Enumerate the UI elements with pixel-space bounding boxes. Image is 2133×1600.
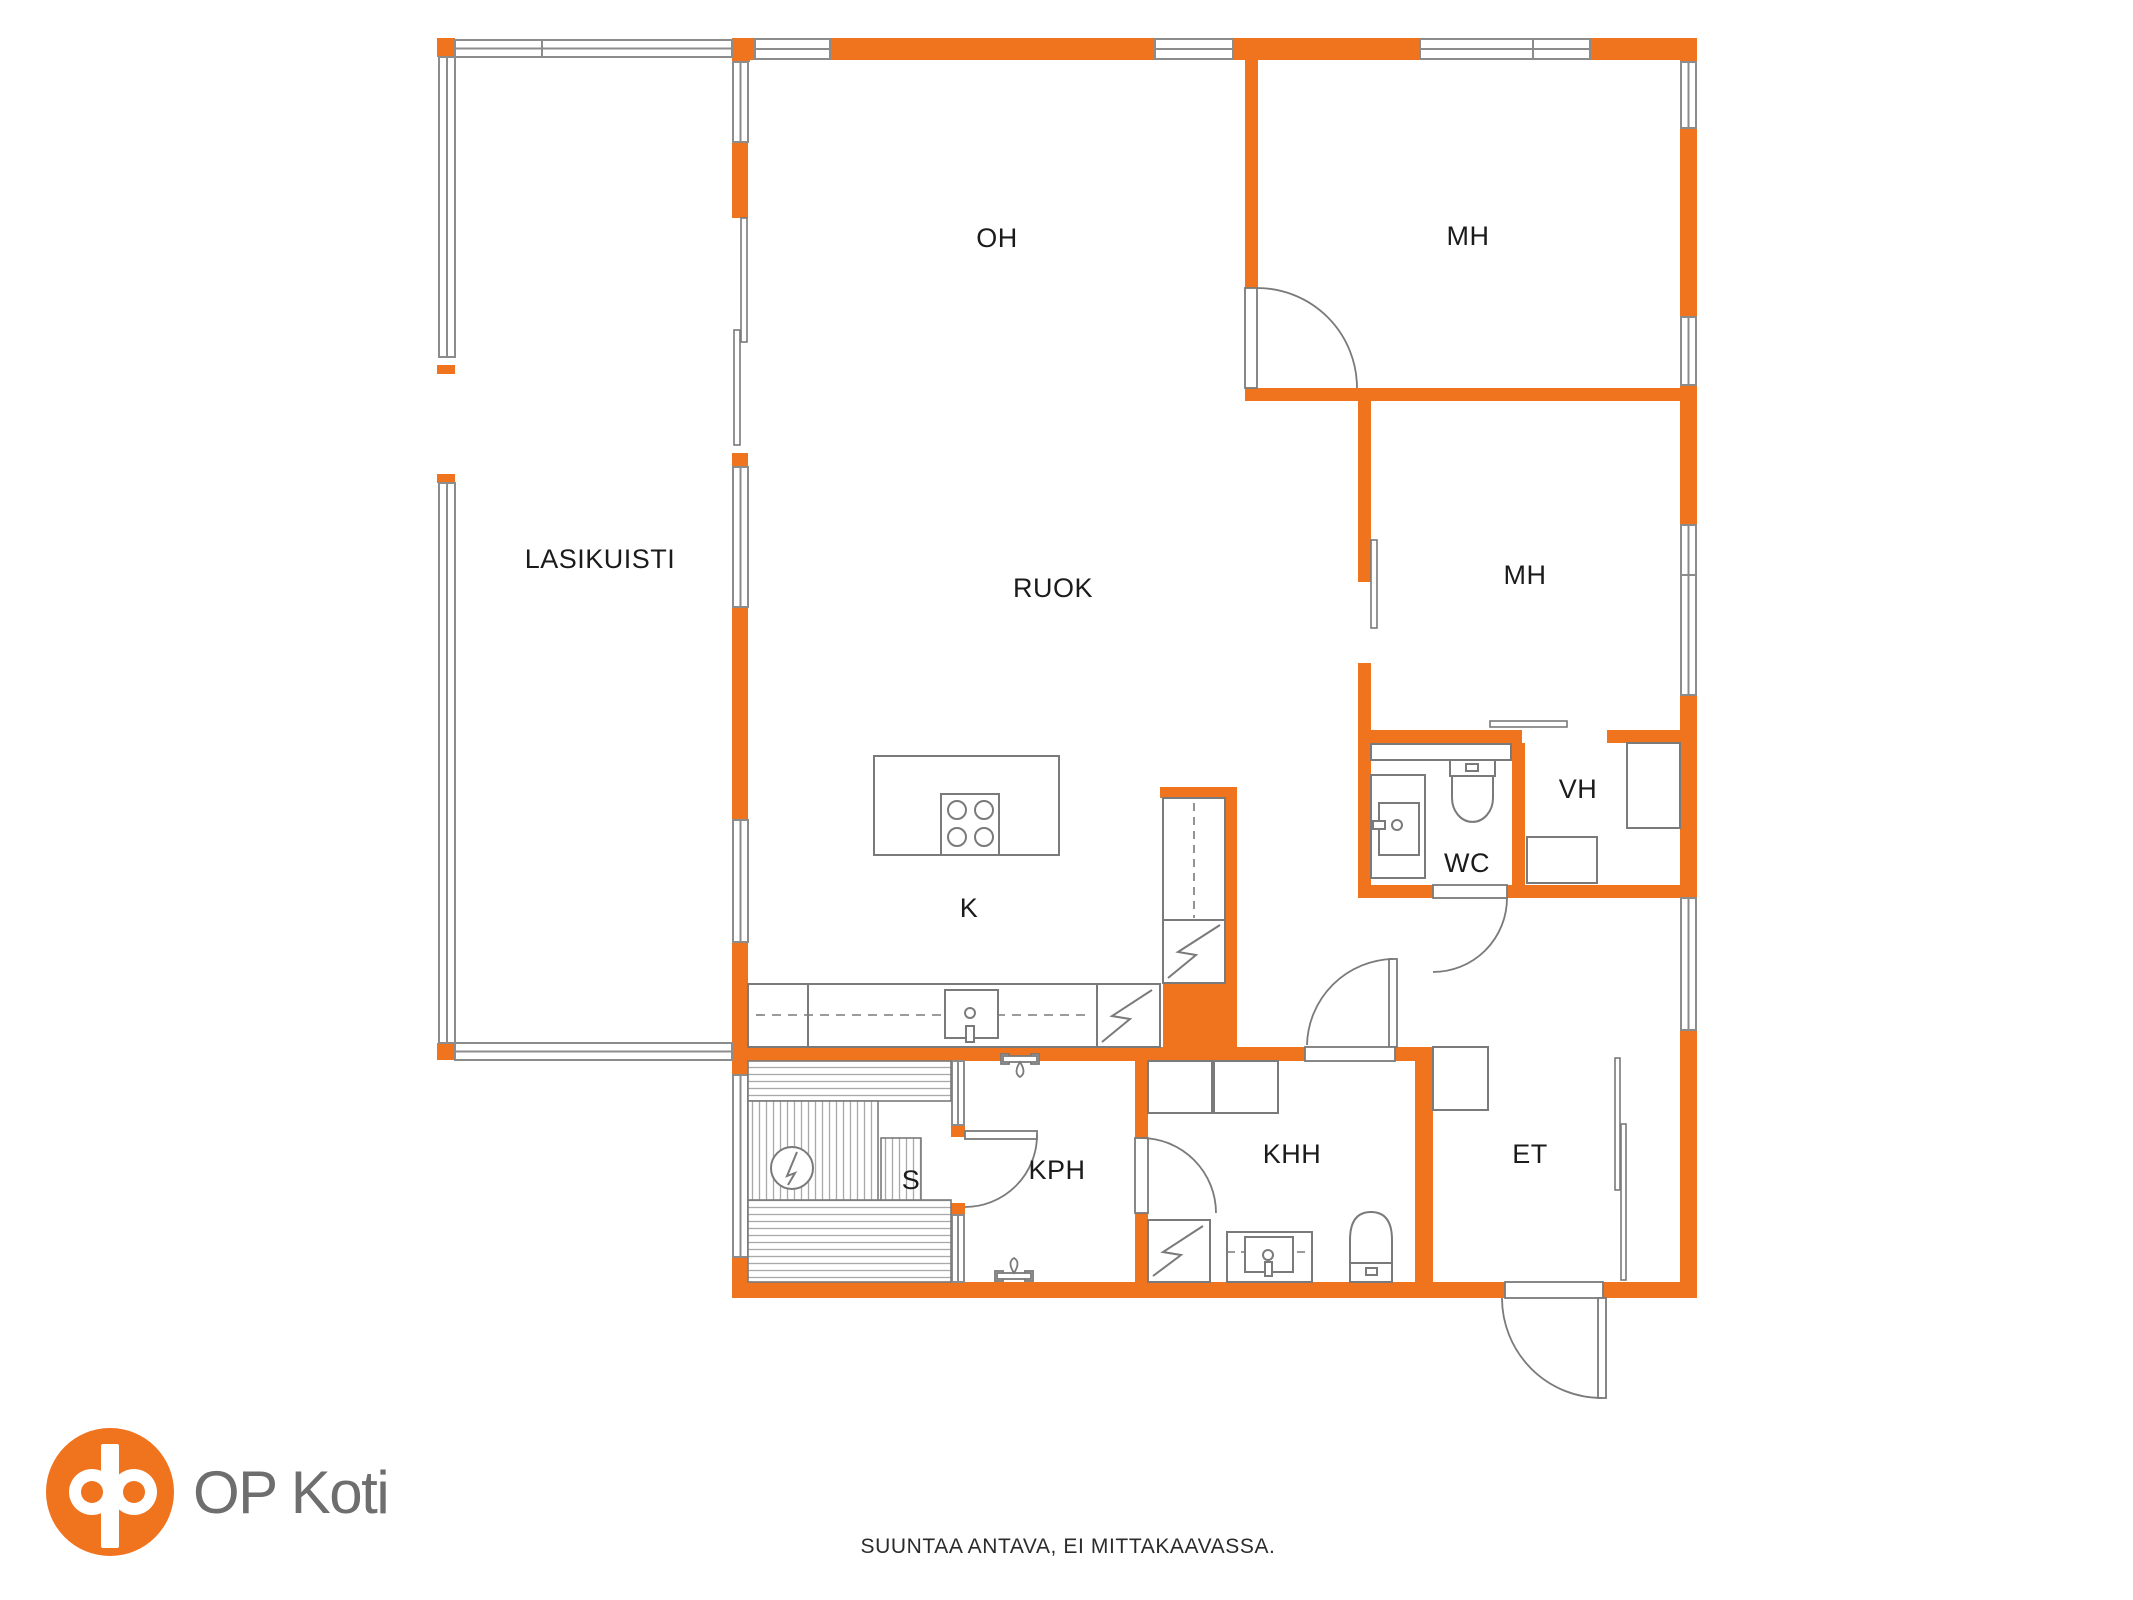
- logo-text: OP Koti: [193, 1459, 388, 1526]
- sliding-door-panel: [741, 218, 747, 342]
- room-label-et: ET: [1512, 1139, 1548, 1169]
- cabinet: [1214, 1061, 1278, 1113]
- room-label-ruok: RUOK: [1013, 573, 1093, 603]
- wall-oh-mh-divider: [1245, 57, 1258, 288]
- stove-burner: [948, 828, 966, 846]
- et-fixtures: [1433, 1047, 1488, 1110]
- sauna-bench-left: [748, 1101, 878, 1200]
- door-threshold: [1305, 1047, 1395, 1061]
- sauna-bench-top: [748, 1061, 951, 1101]
- wall-khh-top-right: [1395, 1047, 1433, 1061]
- room-label-k: K: [960, 893, 979, 923]
- op-logo-ring-hole: [81, 1481, 103, 1503]
- wc-drain: [1392, 820, 1402, 830]
- sliding-door-panel: [734, 330, 740, 445]
- khh-faucet: [1263, 1250, 1273, 1260]
- toilet-bowl: [1452, 776, 1493, 822]
- entry-closet: [1433, 1047, 1488, 1110]
- toilet-flush-button: [1466, 764, 1478, 771]
- wall-khh-et-divider: [1415, 1061, 1433, 1282]
- floorplan-drawing: LASIKUISTI OH MH RUOK MH VH WC K S KPH K…: [0, 0, 2133, 1600]
- sliding-door-panel: [1371, 540, 1377, 628]
- water-heater-button: [1366, 1268, 1377, 1275]
- floorplan-page: LASIKUISTI OH MH RUOK MH VH WC K S KPH K…: [0, 0, 2133, 1600]
- sauna-heater: [771, 1147, 813, 1189]
- wall-mh2-bottom-right: [1607, 730, 1697, 743]
- wall-mh2-bottom-left: [1358, 730, 1522, 743]
- background: [0, 0, 2133, 1600]
- door-leaf: [1135, 1138, 1148, 1213]
- wall-segment: [437, 1043, 455, 1060]
- sink-faucet-stem: [966, 1026, 974, 1042]
- wc-shelf: [1371, 744, 1511, 760]
- sliding-door-panel: [1490, 721, 1567, 727]
- wall-segment: [732, 607, 748, 820]
- caption: SUUNTAA ANTAVA, EI MITTAKAAVASSA.: [861, 1535, 1276, 1558]
- stove-burner: [975, 828, 993, 846]
- cabinet: [1148, 1061, 1212, 1113]
- door-leaf: [1389, 959, 1397, 1047]
- wc-faucet: [1373, 821, 1385, 829]
- sauna-fixtures: [748, 1061, 951, 1282]
- shelf-unit: [1527, 837, 1597, 883]
- op-logo-ring-hole: [123, 1481, 145, 1503]
- wall-sauna-glass-block: [951, 1203, 965, 1215]
- wall-mh2-west-upper: [1358, 400, 1371, 582]
- room-label-vh: VH: [1559, 774, 1598, 804]
- stove-burner: [948, 801, 966, 819]
- wall-kph-khh-lower: [1135, 1213, 1148, 1282]
- wall-wc-bottom-left: [1358, 885, 1433, 898]
- wall-kph-khh-upper: [1135, 1061, 1148, 1138]
- wall-segment: [437, 365, 455, 374]
- khh-faucet-stem: [1265, 1262, 1272, 1276]
- room-label-lasikuisti: LASIKUISTI: [525, 544, 676, 574]
- door-threshold: [1505, 1282, 1603, 1298]
- stove-burner: [975, 801, 993, 819]
- room-label-mh-mid: MH: [1504, 560, 1547, 590]
- wall-segment: [732, 453, 748, 467]
- room-label-kph: KPH: [1028, 1155, 1085, 1185]
- sliding-door-panel: [1621, 1124, 1626, 1280]
- wall-segment: [732, 142, 748, 218]
- wall-vh-bottom: [1507, 885, 1697, 898]
- wall-sauna-glass-block: [951, 1125, 965, 1137]
- door-leaf: [1245, 288, 1257, 388]
- wall-segment: [437, 474, 455, 483]
- door-leaf: [1598, 1298, 1606, 1398]
- sliding-door-panel: [1615, 1058, 1620, 1190]
- room-label-wc: WC: [1444, 848, 1490, 878]
- sauna-bench-bottom: [748, 1200, 951, 1282]
- wall-wc-west: [1358, 743, 1371, 898]
- door-threshold: [1433, 885, 1507, 898]
- sink-faucet: [965, 1008, 975, 1018]
- room-label-s: S: [902, 1165, 921, 1195]
- room-label-oh: OH: [976, 223, 1018, 253]
- room-label-khh: KHH: [1263, 1139, 1322, 1169]
- wardrobe: [1627, 743, 1680, 828]
- wall-mh-bottom: [1245, 388, 1697, 401]
- door-leaf: [965, 1131, 1037, 1139]
- wall-segment: [437, 38, 455, 57]
- wall-wc-east: [1512, 743, 1525, 885]
- wall-segment: [732, 38, 750, 62]
- room-label-mh-top: MH: [1447, 221, 1490, 251]
